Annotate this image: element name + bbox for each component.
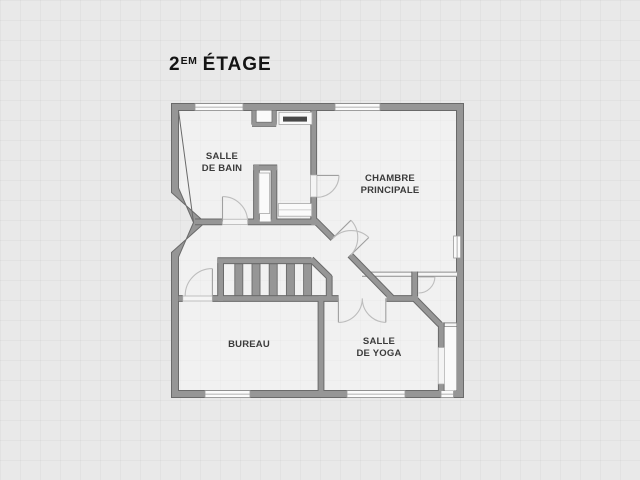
floor-plan-page: 2EMÉTAGE bbox=[0, 0, 640, 480]
room-label-bedroom-2: PRINCIPALE bbox=[361, 185, 420, 196]
closet-opening bbox=[438, 348, 444, 385]
room-label-yoga-1: SALLE bbox=[363, 336, 395, 347]
room-label-yoga-2: DE YOGA bbox=[356, 348, 401, 359]
shower-door bbox=[259, 173, 270, 214]
room-label-office: BUREAU bbox=[228, 339, 270, 350]
office-door-threshold bbox=[183, 296, 213, 301]
closet-interior bbox=[445, 327, 457, 391]
bedroom-door-threshold bbox=[311, 175, 317, 197]
room-label-bathroom-2: DE BAIN bbox=[202, 163, 242, 174]
bathroom-door-threshold bbox=[222, 219, 247, 224]
floor-plan: SALLE DE BAIN CHAMBRE PRINCIPALE BUREAU … bbox=[0, 0, 640, 480]
duct-niche bbox=[252, 111, 276, 125]
ledge-bar bbox=[283, 117, 307, 122]
room-label-bedroom-1: CHAMBRE bbox=[365, 173, 415, 184]
room-label-bathroom-1: SALLE bbox=[206, 151, 238, 162]
